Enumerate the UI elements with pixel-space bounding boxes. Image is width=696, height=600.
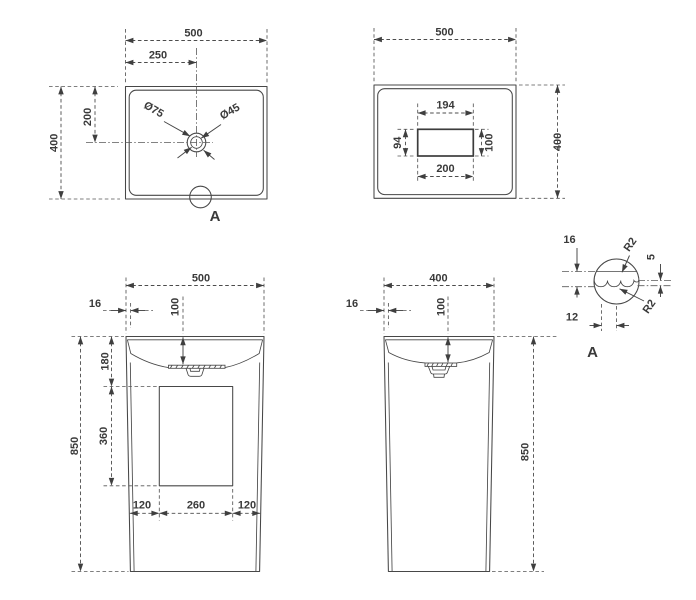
leader-drain-dia-2	[178, 147, 192, 158]
dim-slot-left: 94	[392, 136, 404, 149]
dim-slot-top: 194	[436, 100, 455, 112]
dim-overall-height: 850	[69, 437, 81, 455]
basin-bowl-profile	[127, 340, 262, 368]
service-slot	[418, 129, 474, 156]
leader-faucet-dia-2	[204, 150, 215, 159]
dim-overall-depth: 400	[552, 133, 564, 151]
dim-overall-depth: 400	[429, 273, 447, 285]
dim-wave-height: 5	[646, 254, 658, 260]
dim-hole-offset-x: 250	[149, 50, 167, 62]
leader-bottom-radius	[620, 289, 645, 301]
side-view: 400 16 100 850	[346, 273, 557, 572]
floor-hatch-ticks	[170, 365, 221, 368]
detail-a-view: 16 5 12 R2 R2 A	[562, 234, 671, 361]
dim-overall-width: 500	[435, 27, 453, 39]
ext-lines-rim-offset	[103, 303, 153, 328]
rim-and-inner-edges	[127, 340, 262, 572]
dim-drain-hole-dia: Ø45	[218, 102, 242, 123]
dim-rim-offset: 16	[89, 298, 101, 310]
dim-basin-depth: 100	[170, 298, 182, 316]
dim-apron-height: 180	[100, 352, 112, 370]
detail-marker-circle	[190, 186, 212, 208]
dim-basin-depth: 100	[436, 298, 448, 316]
dim-rim-thickness: 16	[563, 234, 575, 246]
reference-lines	[562, 272, 671, 287]
service-opening	[159, 387, 232, 486]
dim-hole-offset-y: 200	[82, 108, 94, 126]
bottom-plan-view: 500 400 194 200 94 100	[374, 27, 565, 199]
ext-lines-heights	[72, 337, 159, 572]
dim-slot-right: 100	[484, 134, 496, 152]
front-view: 500 16 100 180 360 850 120 260 120	[69, 273, 264, 572]
detail-circle	[594, 259, 639, 304]
dim-top-radius: R2	[622, 236, 640, 254]
ext-lines-wave-width	[602, 304, 617, 331]
floor-hatch-ticks	[427, 363, 453, 366]
ext-lines-rim-offset	[360, 303, 411, 328]
leader-faucet-dia-1	[164, 122, 190, 137]
pedestal-outline	[384, 337, 494, 572]
dim-overall-depth: 400	[49, 134, 61, 152]
basin-bowl-profile	[385, 340, 492, 363]
pedestal-outline	[126, 337, 264, 572]
top-plan-view: 500 250 400 200 Ø75 Ø45 A	[49, 28, 268, 226]
dim-overall-height: 850	[520, 443, 532, 461]
dim-overall-width: 500	[192, 273, 210, 285]
detail-label: A	[587, 344, 598, 361]
rim-and-inner-edges	[385, 340, 492, 572]
drawing-canvas: 500 250 400 200 Ø75 Ø45 A 500 400 194 20…	[0, 0, 696, 600]
dim-base-left: 120	[133, 500, 151, 512]
drain-fitting	[428, 366, 449, 377]
drain-fitting	[186, 368, 204, 376]
leader-drain-dia-1	[201, 125, 221, 139]
detail-marker-label: A	[210, 208, 221, 225]
dim-wave-width: 12	[566, 312, 578, 324]
dim-base-center: 260	[187, 500, 205, 512]
dim-base-right: 120	[238, 500, 256, 512]
leader-top-radius	[622, 256, 630, 273]
dim-overall-width: 500	[184, 28, 202, 40]
dim-faucet-hole-dia: Ø75	[141, 100, 165, 121]
dim-slot-bottom: 200	[436, 163, 454, 175]
dim-opening-height: 360	[98, 427, 110, 445]
dim-rim-offset: 16	[346, 298, 358, 310]
wave-profile	[594, 281, 638, 287]
technical-drawing: 500 250 400 200 Ø75 Ø45 A 500 400 194 20…	[0, 0, 696, 600]
